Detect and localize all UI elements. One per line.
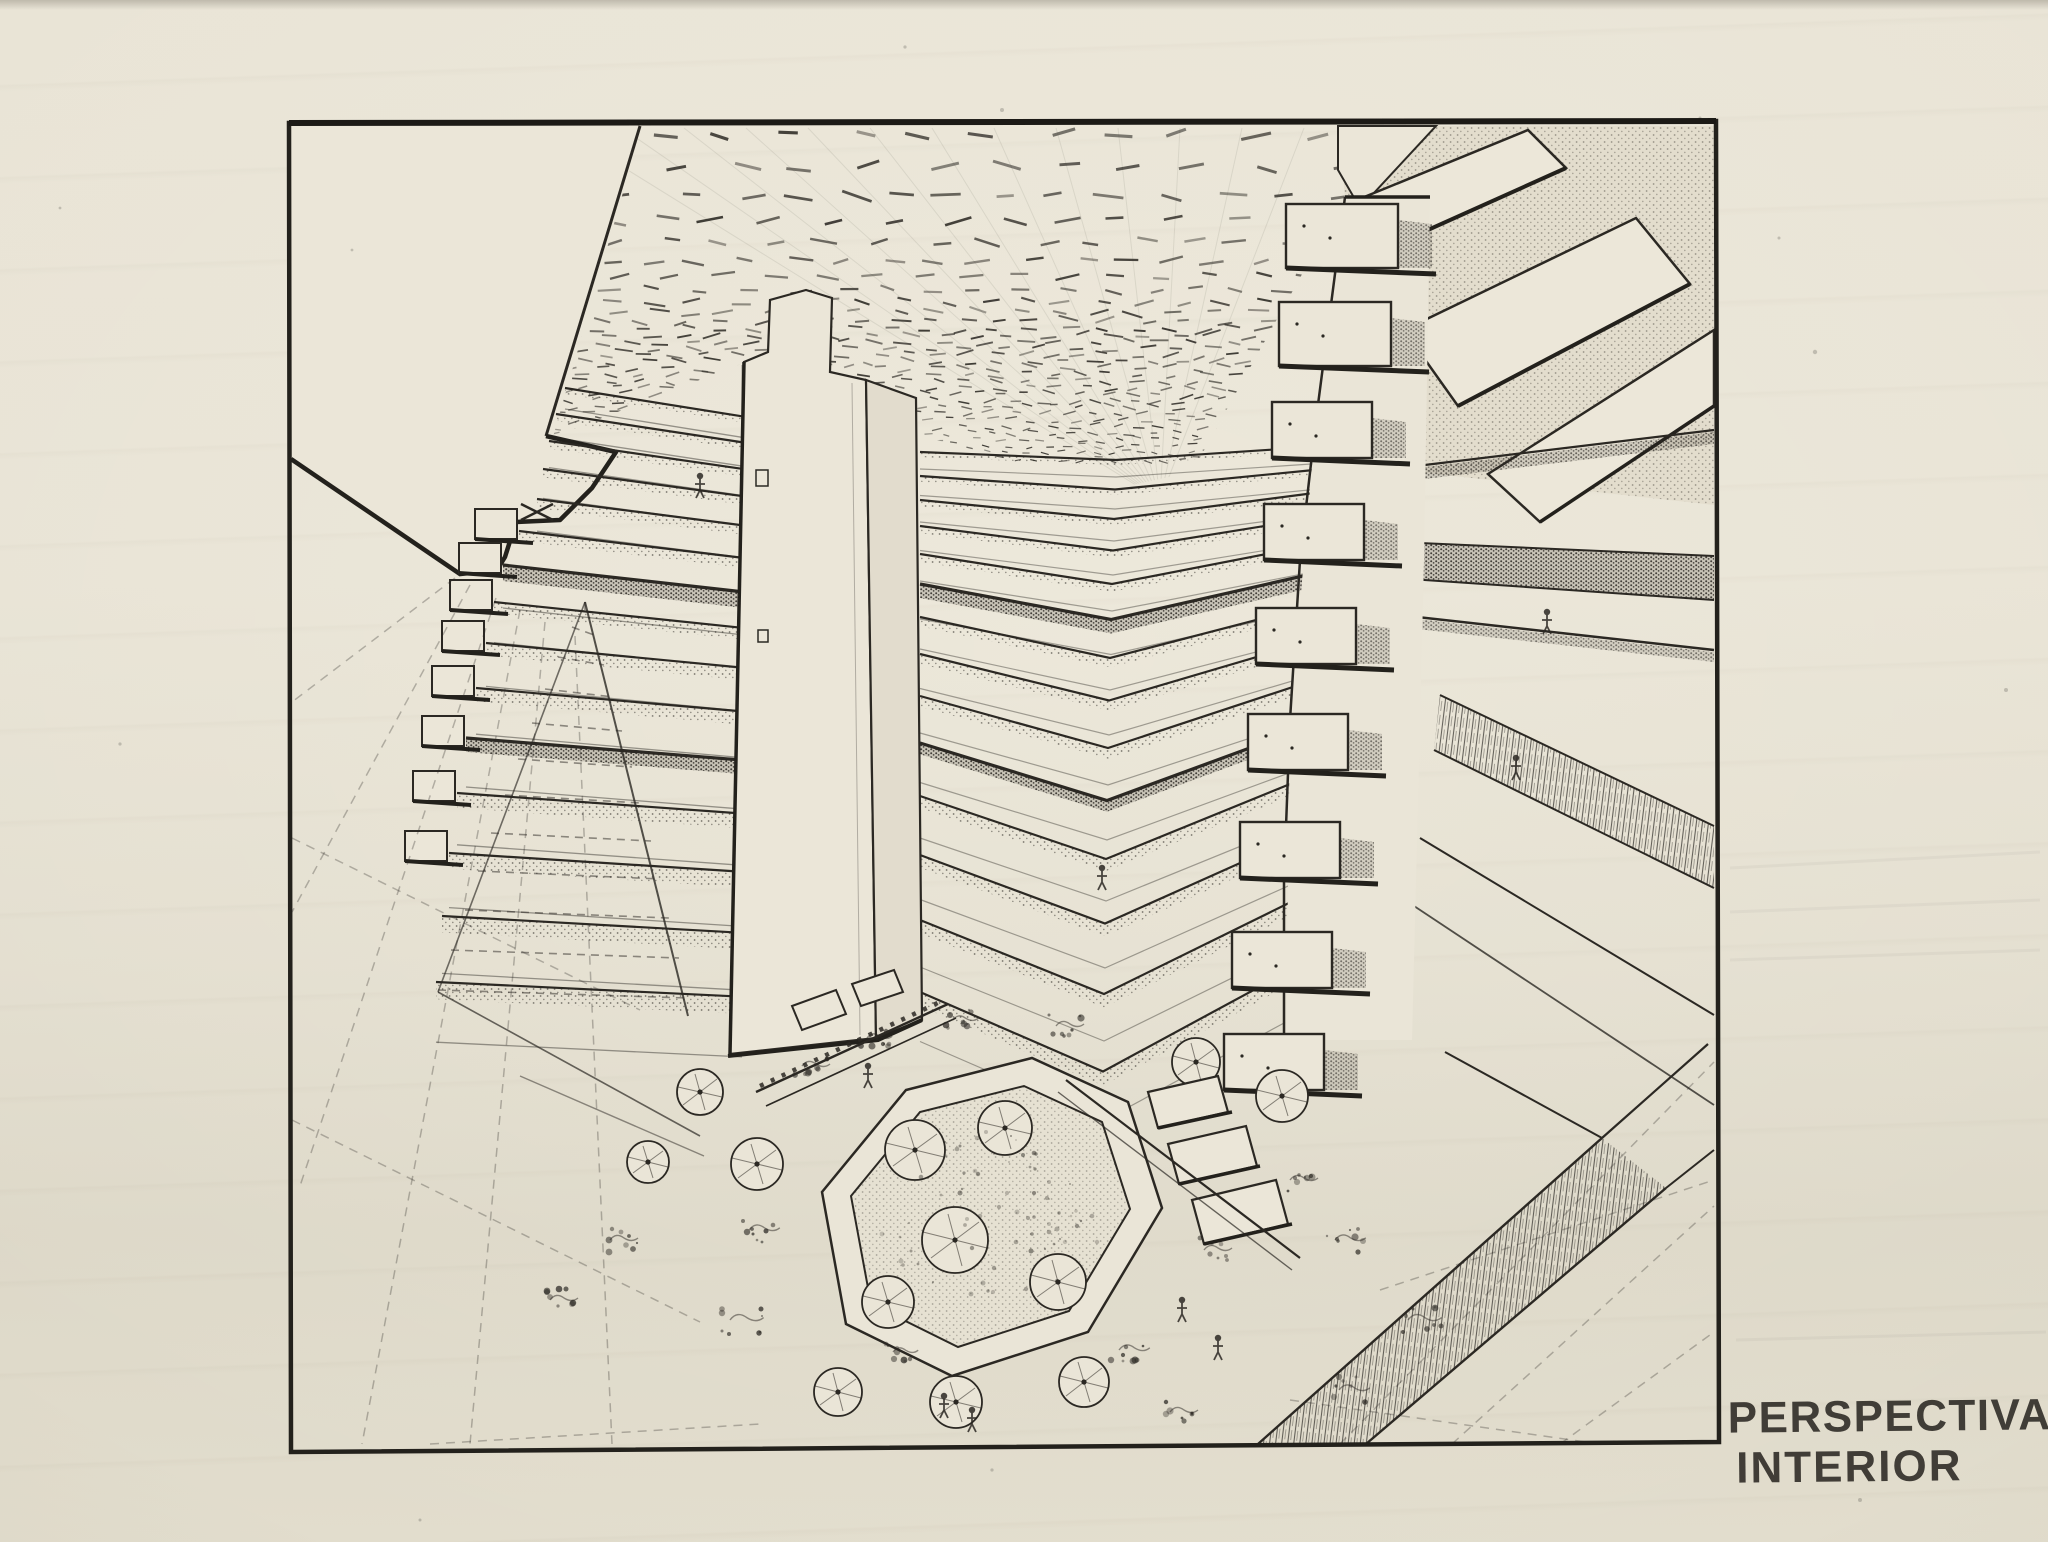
scanned-drawing-photo: PERSPECTIVA INTERIOR — [0, 0, 2048, 1542]
right-pier — [1224, 197, 1436, 1096]
caption-line-2: INTERIOR — [1736, 1440, 2048, 1493]
ghost-print-lines — [1730, 852, 2046, 1340]
caption: PERSPECTIVA INTERIOR — [1727, 1390, 2048, 1493]
skylight-ceiling-grid — [522, 128, 1373, 500]
caption-line-1: PERSPECTIVA — [1727, 1390, 2048, 1443]
central-elevator-tower — [728, 290, 922, 1056]
atrium-perspective-drawing — [0, 0, 2048, 1542]
bottom-right-ramp — [1258, 1044, 1714, 1444]
